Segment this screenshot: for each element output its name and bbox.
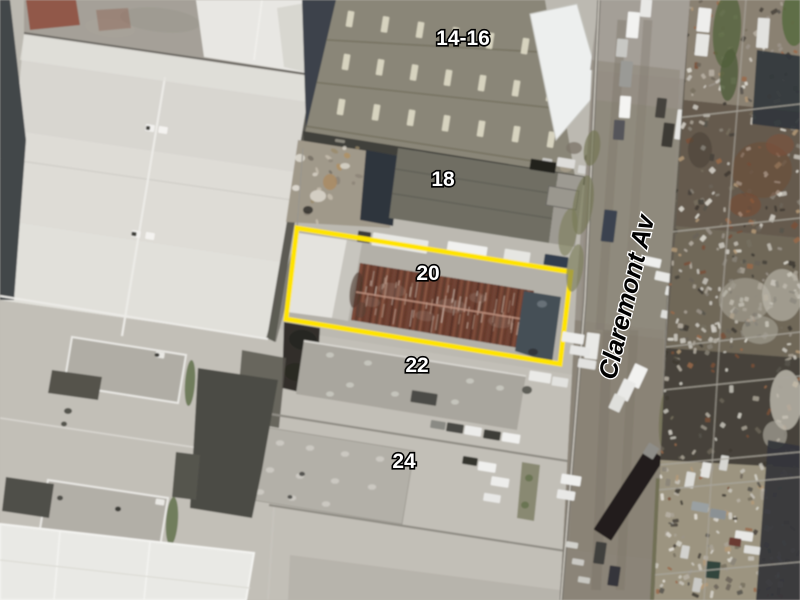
svg-text:20: 20 — [416, 262, 439, 285]
svg-text:24: 24 — [392, 450, 416, 473]
svg-text:22: 22 — [405, 354, 428, 377]
svg-text:18: 18 — [431, 168, 455, 191]
svg-text:14-16: 14-16 — [436, 27, 490, 50]
